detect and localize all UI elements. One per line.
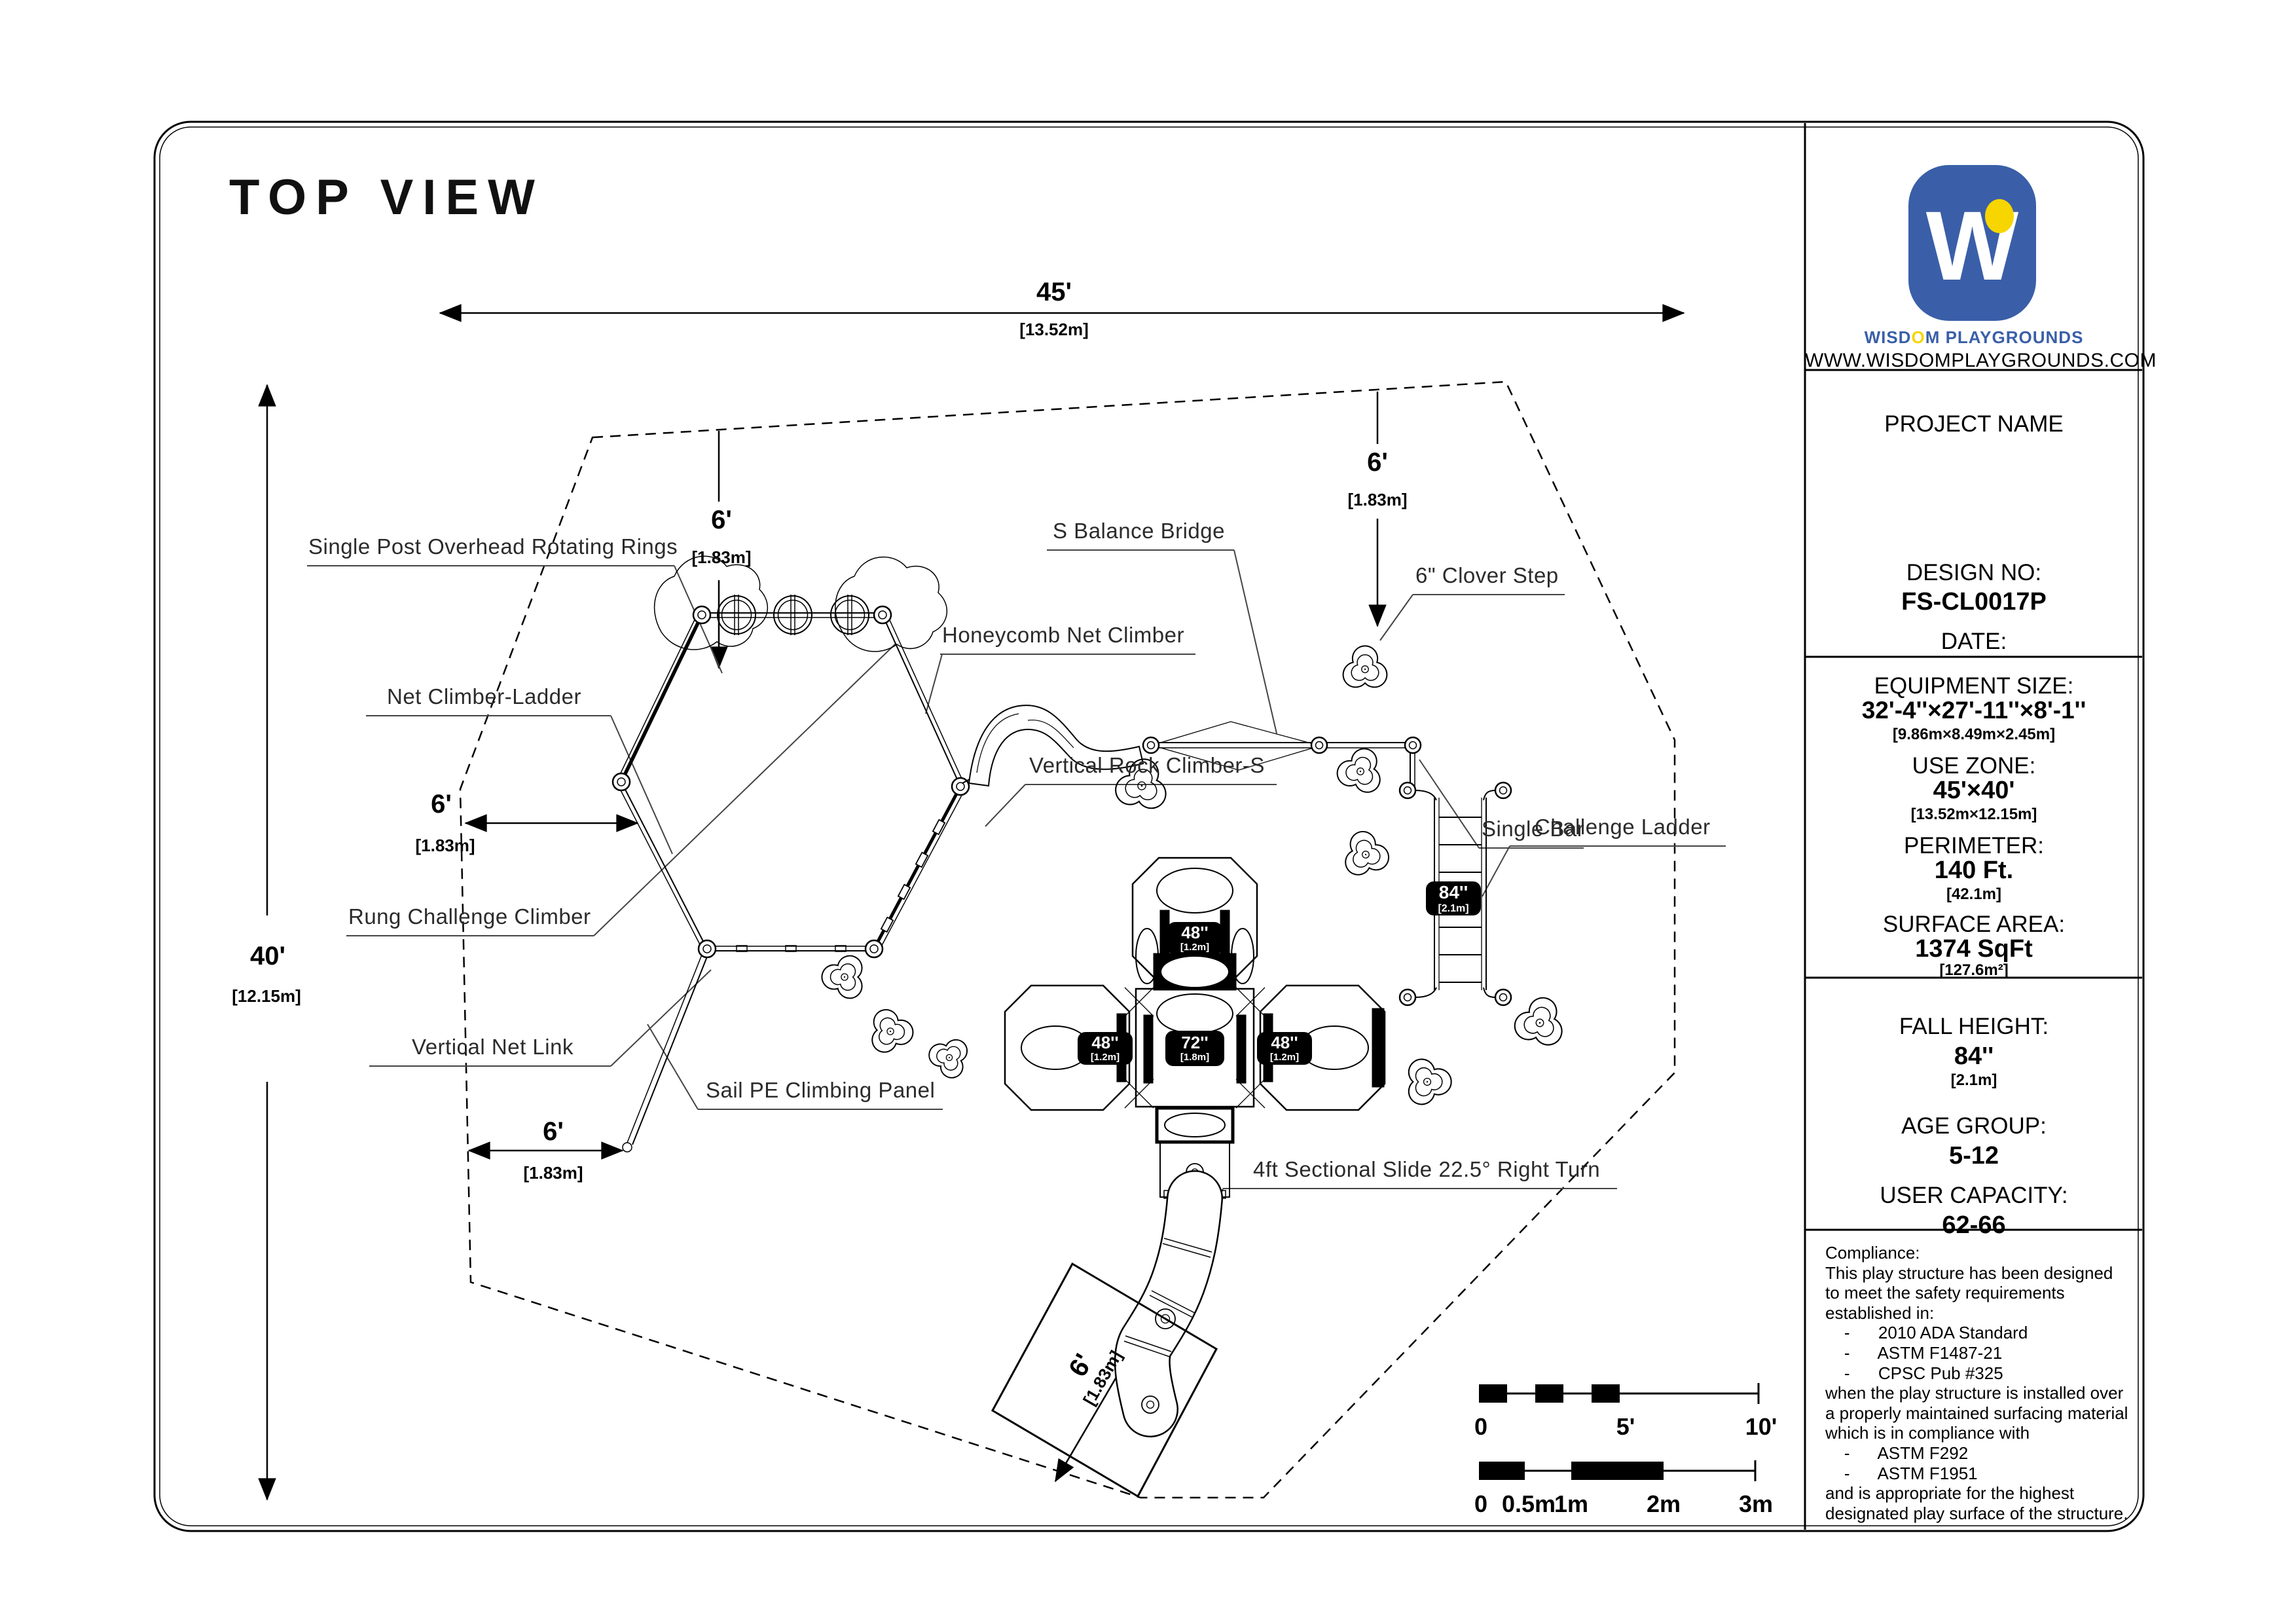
equipment-size-label: EQUIPMENT SIZE: [1805,673,2143,699]
callout-sail-pe-climbing-panel: Sail PE Climbing Panel [706,1078,935,1103]
badge-metric: [1.2m] [1091,1052,1120,1063]
fall-height-metric: [2.1m] [1805,1071,2143,1090]
badge-value: 72'' [1181,1033,1208,1052]
dim-6ft-sail-value: 6' [543,1117,564,1147]
bridge-posts [1143,737,1421,753]
badge-value: 48'' [1091,1033,1118,1052]
use-zone-value: 45'×40' [1805,777,2143,805]
callout-rotating-rings: Single Post Overhead Rotating Rings [308,534,678,559]
equipment-size-metric: [9.86m×8.49m×2.45m] [1805,726,2143,744]
dim-40ft-metric: [12.15m] [232,986,301,1006]
dim-6ft-ne-metric: [1.83m] [1347,490,1407,510]
drawing-sheet: TOP VIEW Single Post Overhead Rotating R… [0,0,2296,1624]
compliance-line: designated play surface of the structure… [1825,1504,2138,1524]
scale-ft-10: 10' [1745,1413,1777,1441]
use-zone-metric: [13.52m×12.15m] [1805,805,2143,824]
user-capacity-value: 62-66 [1805,1211,2143,1240]
date-label: DATE: [1805,629,2143,655]
callout-net-climber-ladder: Net Climber-Ladder [387,684,581,709]
scale-ft-5: 5' [1616,1413,1635,1441]
compliance-line: which is in compliance with [1825,1423,2138,1443]
compliance-line: - CPSC Pub #325 [1825,1363,2138,1384]
callout-rung-challenge-climber: Rung Challenge Climber [348,904,591,929]
scale-ft-0: 0 [1474,1413,1487,1441]
dim-6ft-nw-value: 6' [711,506,732,535]
use-zone-label: USE ZONE: [1805,753,2143,779]
badge-metric: [1.2m] [1270,1052,1299,1063]
company-url: WWW.WISDOMPLAYGROUNDS.COM [1805,350,2143,372]
compliance-line: established in: [1825,1303,2138,1323]
project-name-label: PROJECT NAME [1805,411,2143,437]
callout-vertical-rock-climber-s: Vertical Rock Climber-S [1029,753,1265,778]
badge-value: 84'' [1439,883,1468,903]
scale-bar-meters [1479,1460,1755,1481]
scale-m-2: 2m [1647,1490,1681,1518]
callout-leaders [307,550,1726,1316]
dim-6ft-sail-metric: [1.83m] [523,1163,583,1183]
brand-post: M PLAYGROUNDS [1925,327,2084,347]
badge-metric: [2.1m] [1438,903,1468,915]
dim-6ft-ne-value: 6' [1367,448,1388,477]
fall-height-label: FALL HEIGHT: [1805,1014,2143,1040]
badge-value: 48'' [1271,1033,1298,1052]
honeycomb-net-climber [613,556,969,1152]
perimeter-value: 140 Ft. [1805,857,2143,885]
badge-metric: [1.8m] [1180,1052,1209,1063]
scale-m-1: 1m [1554,1490,1588,1518]
age-group-value: 5-12 [1805,1142,2143,1170]
callout-clover-step: 6" Clover Step [1415,563,1559,588]
badge-metric: [1.2m] [1180,942,1209,953]
compliance-line: - ASTM F292 [1825,1443,2138,1464]
logo-dot-icon [1985,199,2014,233]
dim-6ft-hex-value: 6' [431,790,452,819]
design-no-label: DESIGN NO: [1805,560,2143,586]
scale-m-0: 0 [1474,1490,1487,1518]
dim-40ft-value: 40' [250,942,285,971]
rotating-rings [718,595,869,635]
hexagon-posts [613,606,969,957]
compliance-line: a properly maintained surfacing material [1825,1403,2138,1424]
compliance-line: when the play structure is installed ove… [1825,1383,2138,1403]
brand-pre: WISD [1865,327,1912,347]
design-no-value: FS-CL0017P [1805,588,2143,616]
net-climber-ladder-edge [621,615,702,782]
page-title: TOP VIEW [229,169,544,226]
dim-45ft-metric: [13.52m] [1019,320,1089,340]
age-group-label: AGE GROUP: [1805,1113,2143,1139]
callout-vertical-net-link: Vertical Net Link [412,1035,574,1060]
compliance-line: This play structure has been designed [1825,1263,2138,1283]
compliance-line: - ASTM F1487-21 [1825,1343,2138,1363]
brand-name: WISDOM PLAYGROUNDS [1805,327,2143,348]
cube-tower-structure [1005,858,1385,1198]
scale-m-3: 3m [1739,1490,1773,1518]
compliance-line: and is appropriate for the highest [1825,1483,2138,1504]
sail-panel-tip [623,1143,632,1152]
callout-sectional-slide: 4ft Sectional Slide 22.5° Right Turn [1253,1157,1600,1182]
badge-72in-center: 72'' [1.8m] [1165,1031,1224,1066]
perimeter-metric: [42.1m] [1805,885,2143,904]
scale-bar-feet [1479,1383,1758,1404]
badge-48in-top: 48'' [1.2m] [1167,922,1222,955]
compliance-text: Compliance: This play structure has been… [1825,1243,2138,1523]
user-capacity-label: USER CAPACITY: [1805,1183,2143,1209]
compliance-line: Compliance: [1825,1243,2138,1263]
surface-area-label: SURFACE AREA: [1805,912,2143,938]
dim-45ft-value: 45' [1036,278,1072,307]
dim-6ft-nw-metric: [1.83m] [691,547,751,568]
surface-area-metric: [127.6m²] [1805,961,2143,980]
badge-84in-ladder: 84'' [2.1m] [1426,881,1481,915]
dim-6ft-hex-metric: [1.83m] [415,836,475,856]
badge-48in-right: 48'' [1.2m] [1257,1032,1312,1065]
callout-honeycomb-net-climber: Honeycomb Net Climber [942,623,1184,648]
compliance-line: - 2010 ADA Standard [1825,1323,2138,1343]
perimeter-label: PERIMETER: [1805,833,2143,859]
scale-m-05: 0.5m [1502,1490,1556,1518]
surface-area-value: 1374 SqFt [1805,935,2143,963]
compliance-line: - ASTM F1951 [1825,1464,2138,1484]
callout-s-balance-bridge: S Balance Bridge [1053,519,1225,544]
fall-height-value: 84'' [1805,1043,2143,1071]
badge-value: 48'' [1181,923,1208,942]
brand-o: O [1911,327,1925,347]
callout-challenge-ladder: Challenge Ladder [1535,815,1711,840]
company-logo-icon: W [1908,165,2036,321]
equipment-size-value: 32'-4''×27'-11''×8'-1'' [1805,697,2143,724]
compliance-line: to meet the safety requirements [1825,1283,2138,1303]
badge-48in-left: 48'' [1.2m] [1078,1032,1133,1065]
